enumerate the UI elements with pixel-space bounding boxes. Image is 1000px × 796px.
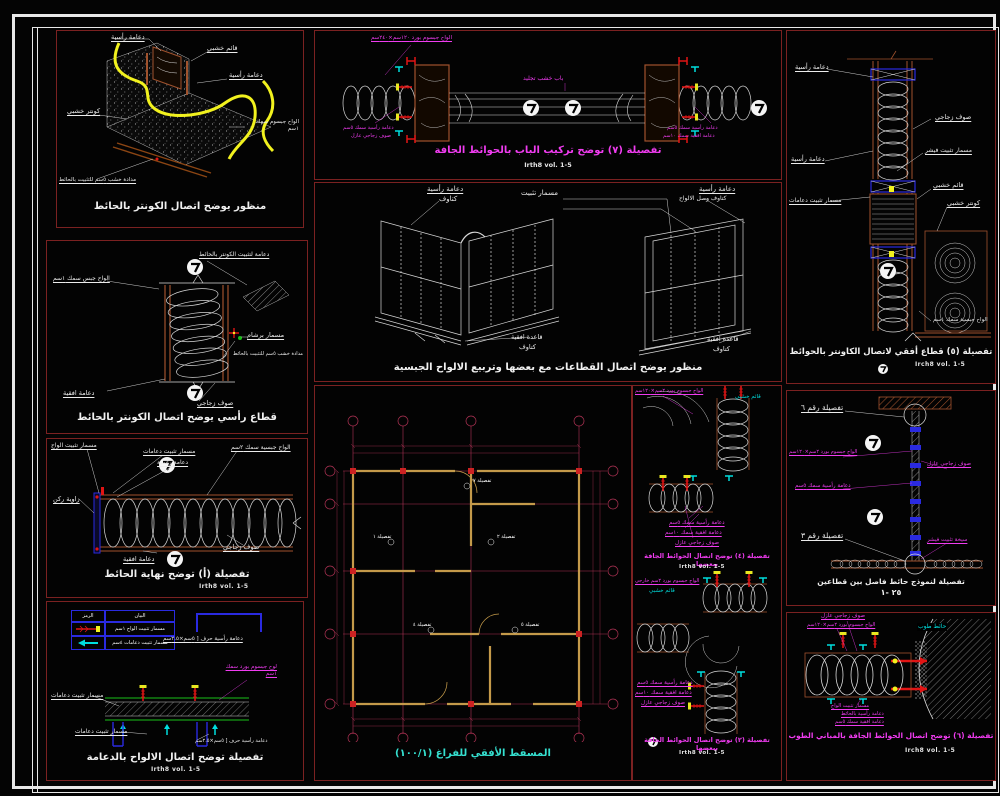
label-vertical-support: دعامة رأسية: [111, 33, 145, 41]
label-gypsum-boards: الواح جبسوم سمك ١سم: [245, 119, 299, 133]
label-vertical-support: دعامة رأسية سمك ٥سم: [795, 483, 851, 490]
panel-brick-connection: صوف زجاجي عازل الواح جبسوم بورد ٢سم×١٢٠س…: [786, 612, 996, 781]
label-door-leaf: باب خشب تجليد: [523, 75, 563, 83]
label-board-nail: مسمار تثبيت الواح: [831, 703, 869, 709]
section-marker: [875, 361, 891, 377]
label-horizontal-support: دعامة افقية: [123, 555, 154, 563]
inner-border-left-double: [37, 27, 38, 793]
label-fischer-anchor: سيخة تثبيت فيشر: [927, 537, 967, 544]
panel-door-detail: الواح جبسوم بورد ١٢٠سم×٢٤٠سم باب خشب تجل…: [314, 30, 782, 180]
sheet-ref: Irth8 vol. 1-5: [151, 766, 201, 773]
caption-iso-sections: منظور يوضح اتصال القطاعات مع بعضها وتربي…: [315, 362, 781, 373]
label-wood-counter: كونتر خشبي: [947, 199, 980, 207]
plan-callout: تفصيلة ٧: [473, 478, 491, 484]
label-gypsum-boards: الواح جبسية سمك ٢سم: [231, 444, 291, 452]
label-gypsum-boards: الواح جبسوم بورد ١٢٠سم×٢٤٠سم: [371, 35, 452, 42]
label-wood-counter: كونتر خشبي: [67, 107, 100, 115]
label-wood-post: قائم خشبي: [735, 394, 761, 401]
label-vertical-support: دعامة رأسية سمك ٥سم: [637, 680, 693, 687]
label-gypsum-boards: الواح جبس سمك ١سم: [53, 275, 110, 283]
label-vertical-support-2: دعامة رأسية: [229, 71, 263, 79]
label-vertical-support: دعامة رأسية: [157, 459, 188, 467]
panel-counter-horizontal: دعامة رأسية صوف زجاجي دعامة رأسية مسمار …: [786, 30, 996, 384]
p11-drawing: [787, 613, 993, 727]
caption-detail-a: تفصيلة (أ) توضح نهاية الحائط: [47, 569, 307, 580]
label-glass-wool: صوف زجاجي عازل: [641, 700, 685, 707]
caption-counter-horizontal: تفصيلة (٥) قطاع أفقي لاتصال الكاونتر بال…: [787, 347, 995, 357]
label-rivet-nail: مسمار برشام: [247, 331, 284, 339]
label-vertical-channel: دعامة رأسية حرف [ ٥سم×٢.٥سم: [163, 636, 243, 643]
label-glass-wool-left: صوف زجاجي عازل: [351, 133, 391, 139]
p2-drawing: [47, 241, 305, 409]
label-glass-wool: صوف زجاجي: [197, 399, 233, 407]
panel-floor-plan: تفصيلة ٧ تفصيلة ١ تفصيلة ٢ تفصيلة ٤ تفصي…: [314, 385, 632, 781]
panel-section-counter: دعامة لتثبيت الكونتر بالحائط الواح جبس س…: [46, 240, 308, 434]
label-wood-post: قائم خشبي: [207, 44, 238, 52]
label-vertical-support-2: دعامة رأسية: [791, 155, 825, 163]
label-horizontal-base-right: قاعدة افقية: [707, 335, 739, 343]
plan-callout: تفصيلة ٤: [413, 622, 431, 628]
panel-boards-support: البيان الرمز مسمار تثبيت الواح ١سم مسمار…: [46, 601, 304, 781]
label-glass-wool: صوف زجاجي: [223, 543, 259, 551]
panel-iso-sections: دعامة رأسية كتاوف مسمار تثبيت دعامة رأسي…: [314, 182, 782, 382]
label-vertical-support-left: دعامة رأسية: [427, 185, 463, 194]
caption-section-counter: قطاع رأسي يوضح اتصال الكونتر بالحائط: [47, 412, 307, 423]
label-vertical-support-left: دعامة رأسية سمك ٥سم: [343, 125, 394, 131]
label-vertical-support-right: دعامة رأسية سمك ٥سم: [667, 125, 718, 131]
label-wood-post: قائم خشبي: [649, 588, 675, 595]
label-cleats-left: كتاوف: [439, 195, 457, 204]
label-vertical-channel-2: دعامة رأسية حرف [ ٥سم×٢.٥سم: [195, 738, 268, 744]
caption-door-detail: تفصيلة (٧) توضح تركيب الباب بالحوائط الج…: [315, 145, 781, 156]
panel-perspective-counter: دعامة رأسية قائم خشبي دعامة رأسية كونتر …: [56, 30, 304, 228]
label-wood-post: قائم خشبي: [933, 181, 964, 189]
sheet-ref: Irch8 vol. 1-5: [905, 747, 955, 754]
label-vertical-support: دعامة رأسية بالحائط: [841, 711, 884, 717]
label-vertical-support-1: دعامة رأسية: [795, 63, 829, 71]
caption-perspective-counter: منظور يوضح اتصال الكونتر بالحائط: [57, 201, 303, 212]
label-gypsum-boards: الواح جبسوم بورد ٢سم×١٢٠سم: [789, 449, 857, 455]
label-gypsum-boards: الواح جبسوم بورد ٢سم خارجي: [635, 578, 699, 584]
label-horizontal-support: دعامة افقية سمك ١٠سم: [635, 690, 692, 697]
label-detail-no-3: تفصيلة رقم ٣: [801, 531, 843, 540]
sheet-ref: Irth8 vol. 1-5: [315, 161, 781, 169]
sheet-ref: Irch8 vol. 1-5: [915, 361, 965, 368]
label-counter-fixing-support: دعامة لتثبيت الكونتر بالحائط: [199, 251, 269, 259]
label-corner-angle: زاوية ركن: [53, 495, 80, 503]
caption-floor-plan: المسقط الأفقي للفراغ (١٠٠/١): [315, 748, 631, 759]
label-brick-wall: حائط طوب: [917, 623, 947, 631]
plan-callout: تفصيلة ٥: [521, 622, 539, 628]
label-horizontal-support: دعامة افقية سمك ١٠سم: [665, 530, 722, 537]
label-horizontal-support: دعامة افقية سمك ٥سم: [835, 719, 884, 725]
label-support-nail: مسمار تثبيت دعامات: [143, 448, 195, 456]
label-vertical-support: دعامة رأسية سمك ٥سم: [669, 520, 725, 527]
label-horizontal-support-right: دعامة افقية سمك ١٠سم: [663, 133, 715, 139]
label-cleats-bottom-right: كتاوف: [713, 345, 730, 353]
label-glass-wool: صوف زجاجي عازل: [821, 613, 865, 620]
label-support-nail-2: مسمار تثبيت دعامات: [75, 728, 127, 736]
label-fischer-nail: مسمار تثبيت فيشر: [925, 147, 972, 155]
caption-boards-support: تفصيلة توضح اتصال الالواح بالدعامة: [47, 752, 303, 763]
caption-partition-model: تفصيلة لنموذج حائط فاصل بين قطاعين: [787, 577, 995, 586]
label-horizontal-base-left: قاعدة افقية: [511, 333, 543, 341]
label-fixing-nail: مسمار تثبيت: [521, 189, 558, 198]
label-glass-wool: صوف زجاجي عازل: [927, 461, 971, 468]
panel-detail-a: مسمار تثبيت الواح مسمار تثبيت دعامات دعا…: [46, 438, 308, 598]
label-support-nail: مسمار تثبيت دعامات: [789, 197, 841, 205]
label-gypsum-boards: الواح جبسية سمك ١سم: [933, 317, 988, 324]
panel-junction-details: الواح جبسوم بورد ٢سم×١٢٠سم قائم خشبي دعا…: [632, 385, 782, 781]
sheet-ref: Irth8 vol. 1-5: [679, 750, 725, 756]
label-cleats-bottom-left: كتاوف: [519, 343, 536, 351]
label-cleats-right: كتاوف وصل الالواح: [679, 195, 727, 203]
plan-callout: تفصيلة ١: [373, 534, 391, 540]
caption-brick-connection: تفصيلة (٦) توضح اتصال الحوائط الجافة بال…: [787, 731, 995, 740]
label-vertical-support-right: دعامة رأسية: [699, 185, 735, 194]
partition-model-scale: ٢٥ -١: [787, 588, 995, 597]
sheet-ref: Irth8 vol. 1-5: [679, 564, 725, 570]
label-gypsum-board: لوح جبسوم بورد سمك ١سم: [215, 664, 277, 678]
label-glass-wool: صوف زجاجي عازل: [675, 540, 719, 547]
p7-drawing: [315, 386, 629, 742]
plan-callout: تفصيلة ٢: [497, 534, 515, 540]
label-wood-batten: مدادة خشب ٥سم للتثبيت بالحائط: [223, 351, 303, 357]
panel-partition-model: تفصيلة رقم ٦ الواح جبسوم بورد ٢سم×١٢٠سم …: [786, 390, 996, 606]
sheet-ref: Irth8 vol. 1-5: [199, 583, 249, 590]
label-gypsum-boards: الواح جبسوم بورد ٢سم×١٢٠سم: [635, 388, 703, 394]
label-wood-batten: مدادة خشب ٥سم للتثبيت بالحائط: [59, 177, 136, 184]
label-glass-wool: صوف زجاجي: [935, 113, 971, 121]
label-board-nail: مسمار تثبيت الواح: [51, 442, 97, 450]
label-support-nail-1: مسمار تثبيت دعامات: [51, 692, 103, 700]
label-gypsum-boards: الواح جبسوم بورد ٢سم×١٢٠سم: [807, 622, 875, 628]
label-horizontal-support: دعامة افقية: [63, 389, 94, 397]
cad-sheet: دعامة رأسية قائم خشبي دعامة رأسية كونتر …: [0, 0, 1000, 796]
label-detail-no-6: تفصيلة رقم ٦: [801, 403, 843, 412]
